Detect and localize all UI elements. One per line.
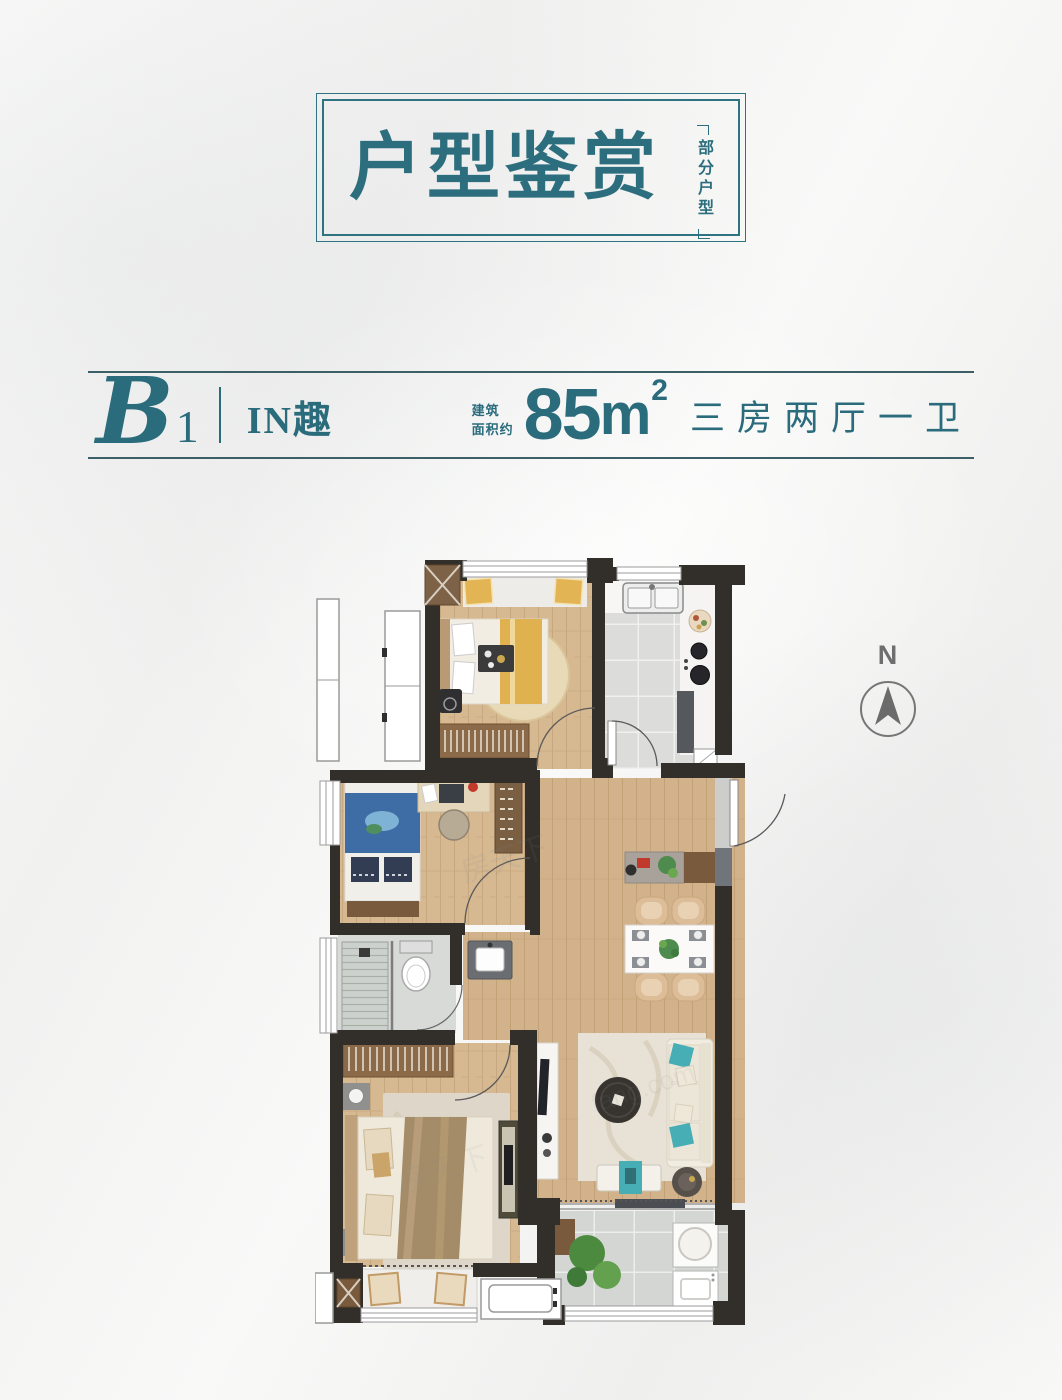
entry-side-wall xyxy=(715,848,732,886)
compass: N xyxy=(856,640,920,744)
sofa-back xyxy=(701,1043,711,1163)
unit-info-bar: B 1 IN趣 建筑 面积约 85 m 2 三房两厅一卫 xyxy=(88,371,974,459)
unit-code-letter: B xyxy=(96,370,174,453)
area-info: 建筑 面积约 85 m 2 三房两厅一卫 xyxy=(472,379,974,451)
area-label-line1: 建筑 xyxy=(472,403,500,418)
console-art xyxy=(637,858,650,868)
kitchen-window xyxy=(617,567,681,580)
area-label-line2: 面积约 xyxy=(472,422,514,437)
master-tv xyxy=(504,1145,513,1185)
bay-pillow xyxy=(435,1273,467,1305)
desk-chair xyxy=(439,810,469,840)
accent-pillow xyxy=(372,1152,391,1178)
bed-bench xyxy=(347,901,419,917)
master-headboard xyxy=(345,1115,358,1261)
console-wood xyxy=(684,852,715,883)
bed-pillow xyxy=(452,661,475,693)
compass-north-label: N xyxy=(856,640,920,671)
bench-item xyxy=(625,1168,636,1184)
bedroom-2-window xyxy=(463,561,587,577)
toilet-tank xyxy=(400,941,432,953)
title-side-note: 部分户型 xyxy=(690,125,716,239)
bathroom-window xyxy=(320,938,337,1033)
area-label: 建筑 面积约 xyxy=(472,402,514,440)
teal-pillow xyxy=(669,1123,694,1148)
fridge xyxy=(677,691,694,753)
page-title: 户型鉴赏 xyxy=(349,131,661,204)
faucet xyxy=(649,584,655,590)
hanger-marks xyxy=(349,1047,447,1071)
gold-pillow xyxy=(554,578,583,605)
unit-code: B 1 IN趣 xyxy=(96,374,333,457)
entry-threshold xyxy=(715,778,732,848)
kids-pillow xyxy=(384,857,412,882)
washing-machine xyxy=(673,1271,718,1307)
kitchen-door xyxy=(608,721,616,765)
unit-name: IN趣 xyxy=(247,389,333,444)
vanity-basin xyxy=(476,948,504,971)
kids-pillow xyxy=(351,857,379,882)
cream-pillow xyxy=(674,1104,693,1123)
floor-plan: 房天下 fang.com 房天下 xyxy=(315,553,790,1328)
master-pillow xyxy=(364,1194,394,1236)
area-unit: m xyxy=(600,386,652,444)
toilet xyxy=(402,957,430,991)
compass-icon xyxy=(858,677,918,739)
stove-burner xyxy=(691,643,707,659)
laptop xyxy=(439,784,464,803)
master-bay-window xyxy=(361,1308,477,1322)
bed-tray xyxy=(478,645,514,672)
gold-pillow xyxy=(464,578,493,605)
kids-room-window xyxy=(320,781,340,845)
unit-code-number: 1 xyxy=(176,400,199,453)
title-box: 户型鉴赏 部分户型 xyxy=(322,99,740,236)
marketing-page: { "title_box": { "title": "户型鉴赏", "side_… xyxy=(0,0,1062,1400)
bed-pillow xyxy=(452,623,476,656)
entry-door xyxy=(730,780,738,846)
paper xyxy=(421,784,437,803)
layout-description: 三房两厅一卫 xyxy=(690,390,972,441)
bay-pillow xyxy=(369,1273,401,1305)
area-value: 85 xyxy=(524,379,600,451)
area-exponent: 2 xyxy=(651,376,668,406)
desk-item xyxy=(468,782,478,792)
shower-drain xyxy=(359,948,370,957)
balcony-window xyxy=(565,1306,713,1321)
stove-burner xyxy=(691,666,710,685)
divider-line xyxy=(219,387,221,443)
